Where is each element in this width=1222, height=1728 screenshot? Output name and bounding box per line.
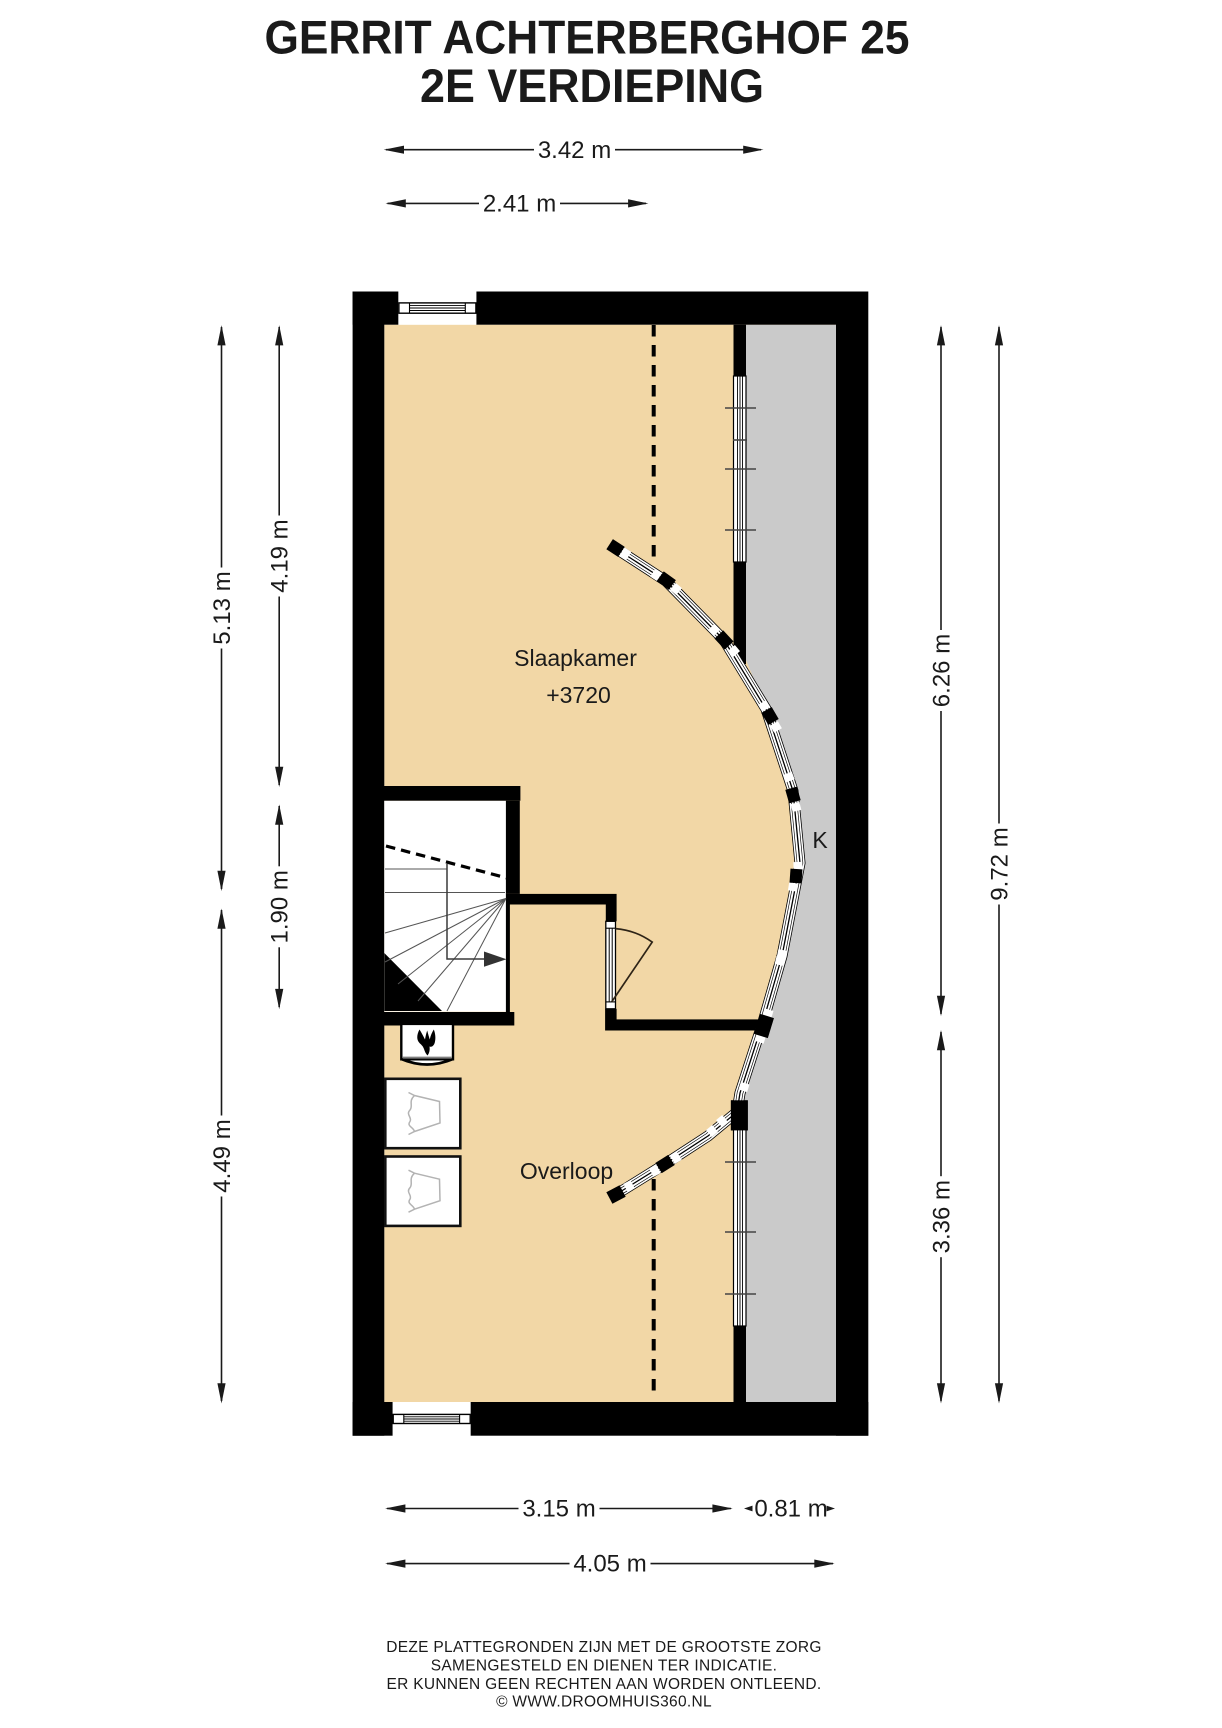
svg-text:+3720: +3720 — [546, 682, 611, 708]
svg-text:2.41 m: 2.41 m — [483, 191, 556, 218]
svg-text:3.36 m: 3.36 m — [929, 1180, 956, 1253]
svg-text:3.15 m: 3.15 m — [522, 1496, 595, 1523]
svg-text:GERRIT ACHTERBERGHOF 25: GERRIT ACHTERBERGHOF 25 — [265, 11, 910, 64]
svg-text:1.90 m: 1.90 m — [267, 870, 294, 943]
svg-text:9.72 m: 9.72 m — [987, 827, 1014, 900]
svg-text:3.42 m: 3.42 m — [538, 137, 611, 164]
svg-text:6.26 m: 6.26 m — [929, 634, 956, 707]
svg-text:5.13 m: 5.13 m — [209, 571, 236, 644]
svg-text:DEZE PLATTEGRONDEN ZIJN MET DE: DEZE PLATTEGRONDEN ZIJN MET DE GROOTSTE … — [386, 1639, 821, 1656]
svg-text:K: K — [812, 827, 828, 853]
svg-text:Overloop: Overloop — [520, 1158, 613, 1184]
svg-text:4.49 m: 4.49 m — [209, 1119, 236, 1192]
svg-text:0.81 m: 0.81 m — [754, 1496, 827, 1523]
svg-text:SAMENGESTELD EN DIENEN TER IND: SAMENGESTELD EN DIENEN TER INDICATIE. — [431, 1658, 777, 1675]
svg-text:4.19 m: 4.19 m — [267, 519, 294, 592]
svg-text:© WWW.DROOMHUIS360.NL: © WWW.DROOMHUIS360.NL — [496, 1694, 712, 1711]
svg-text:Slaapkamer: Slaapkamer — [514, 645, 637, 671]
svg-text:2E VERDIEPING: 2E VERDIEPING — [420, 59, 764, 112]
svg-text:4.05 m: 4.05 m — [573, 1551, 646, 1578]
svg-text:ER KUNNEN GEEN RECHTEN AAN WOR: ER KUNNEN GEEN RECHTEN AAN WORDEN ONTLEE… — [387, 1676, 822, 1693]
